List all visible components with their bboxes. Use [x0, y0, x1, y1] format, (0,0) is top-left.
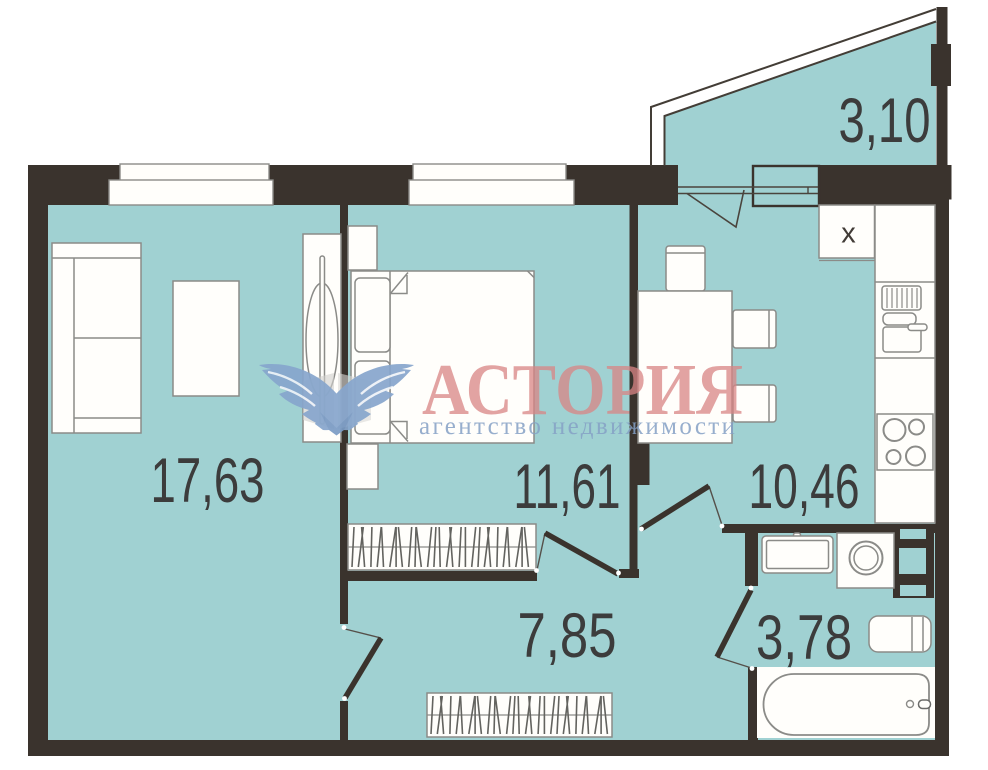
svg-text:7,85: 7,85	[518, 601, 617, 671]
svg-text:10,46: 10,46	[749, 452, 860, 522]
svg-text:x: x	[841, 218, 856, 250]
svg-text:11,61: 11,61	[514, 452, 621, 522]
svg-text:17,63: 17,63	[151, 446, 265, 516]
svg-text:агентство недвижимости: агентство недвижимости	[419, 413, 735, 440]
svg-text:3,10: 3,10	[839, 86, 931, 156]
svg-text:3,78: 3,78	[756, 603, 852, 673]
